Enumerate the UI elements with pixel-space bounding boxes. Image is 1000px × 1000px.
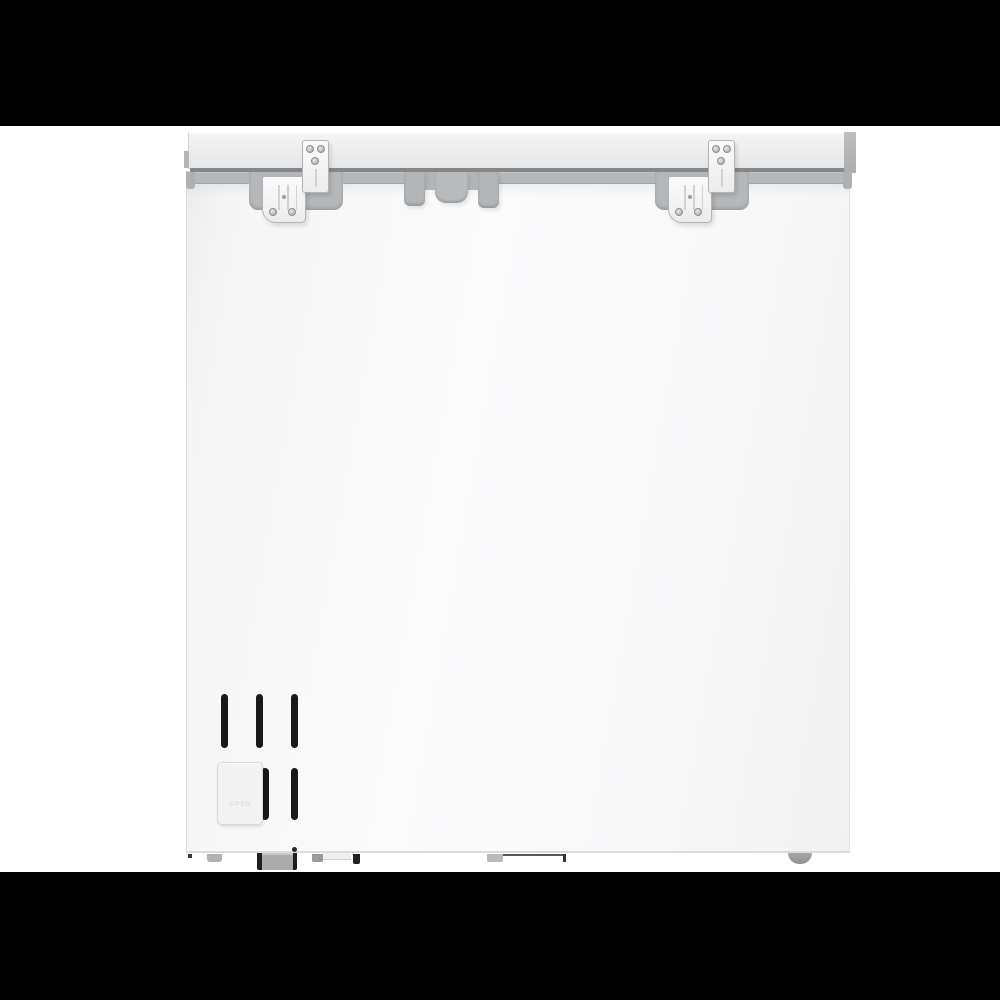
letterbox-bar-bottom bbox=[0, 872, 1000, 1000]
lid-end-cap-left bbox=[184, 151, 189, 168]
vent-slot bbox=[256, 694, 263, 748]
foot-front-left bbox=[207, 854, 222, 862]
cord-anchor bbox=[353, 854, 360, 864]
hinge-pin-dot bbox=[282, 195, 286, 199]
lid-end-cap-right bbox=[844, 132, 856, 173]
latch-tab-right bbox=[478, 172, 499, 208]
drain-access-panel: OPEN bbox=[217, 762, 263, 825]
vent-slot bbox=[291, 694, 298, 748]
product-photo-chest-freezer-rear: OPEN bbox=[0, 0, 1000, 1000]
screw bbox=[675, 208, 683, 216]
drain-panel-label: OPEN bbox=[218, 801, 262, 808]
screw bbox=[311, 157, 319, 165]
hinge-right-upper-bracket bbox=[708, 140, 735, 193]
hinge-pin-dot bbox=[688, 195, 692, 199]
hinge-left-lower-bracket bbox=[262, 176, 306, 223]
rail-hook-left bbox=[186, 172, 195, 189]
vent-slot bbox=[221, 694, 228, 748]
rail-hook-right bbox=[843, 172, 852, 189]
bracket-grooves bbox=[308, 169, 323, 187]
letterbox-bar-top bbox=[0, 0, 1000, 126]
screw bbox=[717, 157, 725, 165]
bottom-clip-mark bbox=[188, 854, 192, 858]
freezer-lid bbox=[188, 133, 844, 169]
hinge-right-lower-bracket bbox=[668, 176, 712, 223]
freezer-body-rear-panel bbox=[186, 171, 850, 853]
screw bbox=[723, 145, 731, 153]
junction-box bbox=[257, 853, 297, 870]
latch-tab-left bbox=[404, 172, 425, 206]
screw bbox=[712, 145, 720, 153]
screw bbox=[317, 145, 325, 153]
screw bbox=[694, 208, 702, 216]
bottom-clip bbox=[312, 854, 323, 862]
junction-box-screw bbox=[292, 847, 297, 852]
screw bbox=[269, 208, 277, 216]
bracket-grooves bbox=[714, 169, 729, 187]
leveling-foot-right bbox=[788, 853, 812, 864]
hinge-left-upper-bracket bbox=[302, 140, 329, 193]
power-cord bbox=[503, 854, 565, 856]
bottom-clip bbox=[487, 854, 503, 862]
latch-tab-center bbox=[435, 172, 468, 203]
power-cord-end bbox=[563, 854, 566, 862]
screw bbox=[306, 145, 314, 153]
bottom-cover-plate bbox=[323, 853, 351, 860]
vent-slot bbox=[291, 768, 298, 820]
center-latch-bracket bbox=[404, 172, 499, 212]
screw bbox=[288, 208, 296, 216]
